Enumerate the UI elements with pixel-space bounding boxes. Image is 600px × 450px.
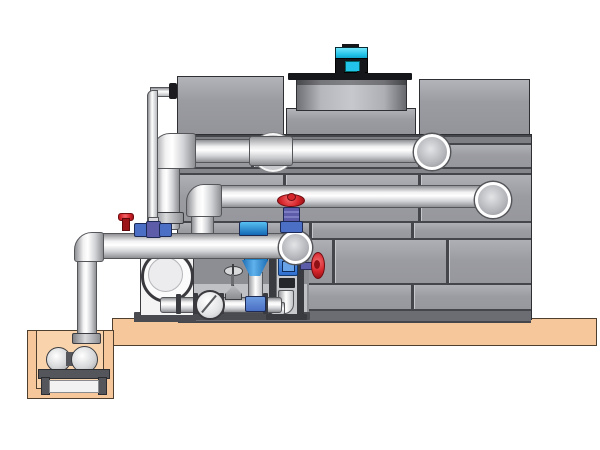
upper-distribution-pipe <box>165 139 432 163</box>
gate-valve-handwheel-hub <box>287 193 296 201</box>
dosing-valve-red-body <box>122 218 130 231</box>
fan-shroud-shadow <box>297 80 406 85</box>
gate-valve-body <box>280 221 303 233</box>
upper-left-casing <box>177 76 284 136</box>
dosing-fittings <box>117 211 175 237</box>
fan-shroud-top-plate <box>288 73 412 80</box>
globe-valve-body <box>225 285 242 300</box>
sump-riser-flange <box>72 333 101 344</box>
check-valve-disc-line <box>201 295 217 313</box>
upper-right-casing <box>419 79 530 136</box>
stand-bottom-bar <box>266 314 307 320</box>
sump-stand-shelf <box>49 380 99 393</box>
wall-coupling <box>249 136 293 166</box>
fan-deck-pedestal <box>286 108 416 136</box>
pump-base <box>134 315 196 322</box>
pipe-flange <box>176 294 181 314</box>
side-valve-hub <box>314 260 320 269</box>
upper-pipe-elbow-down <box>414 134 450 170</box>
fan-motor <box>334 44 367 74</box>
diagram-canvas <box>0 0 600 450</box>
middle-return-pipe <box>198 185 492 208</box>
dosing-valve-blue-2 <box>159 223 172 237</box>
fan-shroud <box>296 79 407 111</box>
suction-header-elbow-left <box>74 232 104 262</box>
gate-valve-red <box>276 193 304 235</box>
suction-header-end-cap <box>279 231 312 264</box>
middle-pipe-elbow-left <box>186 184 222 217</box>
middle-pipe-elbow-down <box>475 182 511 218</box>
fan-motor-foot-right <box>357 71 365 74</box>
sump-riser-pipe <box>77 248 97 344</box>
pump-inlet-bore <box>148 257 183 292</box>
upper-pipe-elbow-left <box>152 133 196 169</box>
stand-lower-panel <box>279 278 295 288</box>
check-valve <box>195 290 225 320</box>
globe-valve-stem <box>231 274 234 286</box>
equalizer-pipe-vertical <box>147 90 158 230</box>
fan-motor-foot-left <box>336 71 344 74</box>
equalizer-pipe-flange <box>169 83 177 99</box>
inline-pump-top-cap <box>239 221 268 236</box>
globe-valve-small <box>222 264 244 300</box>
sump-pump <box>38 344 108 394</box>
inline-pump-base-flange <box>245 296 266 312</box>
sump-stand-leg-right <box>98 377 107 395</box>
